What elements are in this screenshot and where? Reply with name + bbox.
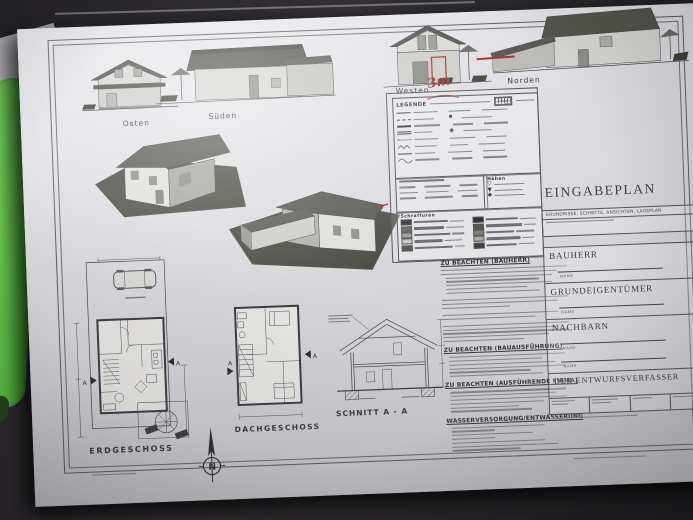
window (351, 228, 359, 239)
svg-text:A: A (176, 360, 181, 367)
north-arrow-icon: N (197, 426, 225, 485)
sheet-edge-highlight (55, 1, 475, 15)
section-marker-right: A (305, 350, 318, 360)
window (115, 69, 123, 77)
footing (345, 390, 358, 399)
line-symbol (398, 153, 412, 155)
line-symbol (397, 131, 411, 135)
lounger (175, 429, 189, 440)
window (134, 68, 142, 76)
lounger (672, 51, 688, 61)
lounger (160, 95, 178, 102)
window (131, 171, 139, 180)
section-bauherr: BAUHERR NAME (544, 242, 693, 283)
hatching-box: Schraffuren (396, 206, 544, 262)
heights-box: Höhen ▽ ▼ ◆ (483, 172, 542, 210)
svg-text:A: A (313, 353, 318, 360)
plan-sheet: Osten Süden (17, 3, 693, 507)
gear-icon: ◉ (449, 129, 454, 135)
content-box: GRUNDRISSE, SCHNITTE, ANSICHTEN, LAGEPLA… (541, 204, 693, 237)
elevation-westen: Westen 3m (379, 17, 494, 91)
window (149, 176, 157, 185)
section-nachbarn: NACHBARN NAME NAME (547, 313, 693, 373)
floor-outline (235, 306, 302, 405)
line-symbol (397, 112, 411, 114)
dachgeschoss-plan-drawing: A A (225, 302, 326, 428)
garage (287, 63, 334, 96)
grid-symbol-icon (494, 96, 512, 106)
section-grundeigentuemer: GRUNDEIGENTÜMER NAME (545, 277, 693, 319)
window (333, 225, 341, 236)
line-symbol (397, 119, 411, 121)
section-marker-left: A (82, 376, 96, 387)
norden-elevation-drawing (489, 3, 691, 77)
grundeigentuemer-label: GRUNDEIGENTÜMER (550, 281, 693, 297)
title-block: EINGABEPLAN GRUNDRISSE, SCHNITTE, ANSICH… (540, 179, 693, 421)
svg-text:N: N (208, 462, 216, 472)
legend-outer-box: LEGENDE ▪ ◉ Höhe (386, 87, 544, 263)
section-marker-left: A (227, 360, 234, 375)
lounger (471, 75, 487, 82)
walls-section (350, 336, 428, 391)
lounger (144, 424, 158, 435)
svg-text:A: A (228, 360, 233, 367)
nachbarn-label: NACHBARN (552, 317, 693, 333)
elevation-sueden: Süden (152, 37, 338, 110)
window (418, 36, 427, 50)
sueden-elevation-drawing (152, 37, 338, 110)
elevation-label-norden: Norden (507, 75, 541, 85)
photo-of-building-plan: Osten Süden (0, 0, 693, 520)
erdgeschoss-plan-drawing: A A (68, 255, 191, 443)
legend-title: LEGENDE (396, 101, 427, 108)
door (249, 75, 259, 98)
door (155, 190, 164, 204)
roof-section (339, 317, 438, 355)
parasol (458, 45, 478, 53)
lounger (82, 104, 96, 110)
perspective-view-2 (221, 165, 405, 280)
zigzag-symbol (398, 144, 412, 150)
schnitt-drawing (328, 311, 449, 407)
bauherr-label: BAUHERR (549, 245, 693, 261)
house-outline (97, 318, 167, 413)
height-marker-icon: ◆ (488, 193, 492, 199)
svg-text:A: A (83, 380, 88, 387)
door (578, 49, 589, 66)
signature-sections: BAUHERR NAME GRUNDEIGENTÜMER NAME NACHBA… (543, 241, 693, 415)
car-top-view (113, 269, 156, 291)
section-marker-right: A (168, 357, 181, 367)
dimension-line (438, 319, 447, 387)
annotation-leaders (328, 314, 369, 332)
line-symbol (398, 139, 412, 141)
window (429, 35, 438, 49)
window (600, 36, 612, 46)
line-symbol (397, 125, 411, 128)
window (271, 78, 280, 87)
legend-box: LEGENDE ▪ ◉ (392, 92, 541, 180)
footing (421, 387, 434, 396)
wave-symbol (398, 157, 412, 164)
elevation-norden: Norden (489, 3, 691, 77)
green-pen-tip (0, 395, 9, 422)
